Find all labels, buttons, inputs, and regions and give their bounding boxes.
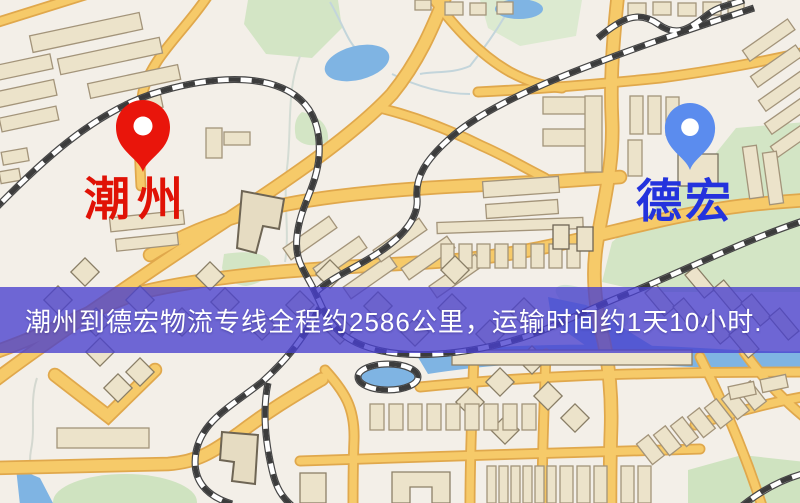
route-info-banner: 潮州到德宏物流专线全程约2586公里，运输时间约1天10小时. <box>0 287 800 353</box>
origin-city-label: 潮州 <box>84 177 190 223</box>
origin-pin-icon[interactable] <box>116 100 170 172</box>
map-view: 潮州 德宏 潮州到德宏物流专线全程约2586公里，运输时间约1天10小时. <box>0 0 800 503</box>
route-info-text: 潮州到德宏物流专线全程约2586公里，运输时间约1天10小时. <box>0 302 762 339</box>
destination-city-label: 德宏 <box>636 179 734 225</box>
map-canvas <box>0 0 800 503</box>
pond <box>321 39 393 88</box>
